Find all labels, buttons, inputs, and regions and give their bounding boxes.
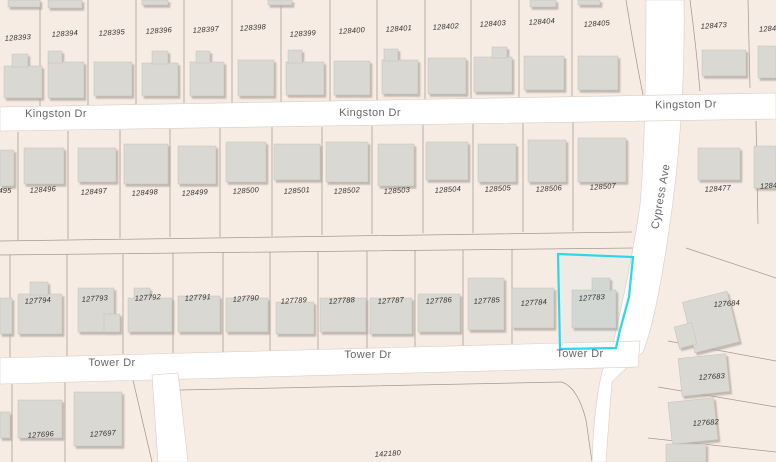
parcel-label: 127792 bbox=[134, 292, 161, 303]
parcel-label: 495 bbox=[0, 186, 12, 195]
parcel-label: 127791 bbox=[184, 292, 211, 303]
parcel-label: 128396 bbox=[145, 25, 172, 36]
parcel-label: 128496 bbox=[29, 184, 56, 195]
parcel-label: 128497 bbox=[80, 186, 107, 197]
parcel-label: 127784 bbox=[520, 297, 547, 308]
parcel-label: 128399 bbox=[289, 28, 316, 39]
parcel-label: 128502 bbox=[333, 185, 360, 196]
parcel-label: 127697 bbox=[89, 428, 116, 439]
parcel-label: 128393 bbox=[4, 32, 31, 43]
parcel-label: 128505 bbox=[484, 183, 511, 194]
parcel-label: 128501 bbox=[283, 185, 310, 196]
parcel-label: 128500 bbox=[232, 185, 259, 196]
parcel-label: 127793 bbox=[81, 293, 108, 304]
parcel-label: 128498 bbox=[131, 187, 158, 198]
parcel-label: 128402 bbox=[432, 21, 459, 32]
parcel-label: 127786 bbox=[425, 295, 452, 306]
parcel-label: 128397 bbox=[192, 24, 219, 35]
parcel-label: 127684 bbox=[713, 298, 740, 309]
street-label-tower-right: Tower Dr bbox=[556, 348, 603, 360]
map-canvas[interactable]: 128393 128394 128395 128396 128397 12839… bbox=[0, 0, 776, 462]
parcel-label: 127785 bbox=[473, 295, 500, 306]
parcel-label: 128404 bbox=[528, 16, 555, 27]
parcel-label: 128398 bbox=[239, 22, 266, 33]
parcel-label: 127790 bbox=[232, 293, 259, 304]
parcel-label: 128503 bbox=[383, 185, 410, 196]
parcel-label: 127787 bbox=[377, 295, 404, 306]
parcel-label: 127696 bbox=[27, 429, 54, 440]
street-label-tower-center: Tower Dr bbox=[344, 349, 391, 361]
parcel-label: 128506 bbox=[535, 183, 562, 194]
parcel-label: 127683 bbox=[698, 371, 725, 382]
road-side-street bbox=[152, 373, 188, 462]
parcel-label: 128507 bbox=[589, 181, 616, 192]
parcel-label: 128401 bbox=[385, 23, 412, 34]
parcel-label: 128400 bbox=[338, 25, 365, 36]
street-label-kingston-right: Kingston Dr bbox=[655, 98, 717, 111]
parcel-label: 128477 bbox=[704, 183, 731, 194]
parcel-map: 128393 128394 128395 128396 128397 12839… bbox=[0, 0, 776, 462]
parcel-label: 128473 bbox=[700, 20, 727, 31]
street-label-tower-left: Tower Dr bbox=[88, 357, 135, 369]
parcel-label: 12847 bbox=[759, 23, 776, 34]
parcel-label: 127788 bbox=[328, 295, 355, 306]
parcel-label: 128504 bbox=[434, 184, 461, 195]
parcel-label: 128499 bbox=[181, 187, 208, 198]
parcel-label: 128394 bbox=[51, 28, 78, 39]
parcel-label: 12847 bbox=[760, 180, 776, 191]
parcel-label: 128395 bbox=[98, 27, 125, 38]
parcel-label: 127682 bbox=[692, 417, 719, 428]
parcel-label: 127794 bbox=[24, 295, 51, 306]
parcel-label: 127789 bbox=[280, 295, 307, 306]
selected-parcel-label: 127783 bbox=[578, 292, 605, 303]
parcel-label: 142180 bbox=[374, 448, 401, 459]
street-label-kingston-center: Kingston Dr bbox=[339, 107, 401, 119]
street-label-kingston-left: Kingston Dr bbox=[25, 108, 87, 120]
parcel-label: 128405 bbox=[583, 18, 610, 29]
parcel-label: 128403 bbox=[479, 18, 506, 29]
